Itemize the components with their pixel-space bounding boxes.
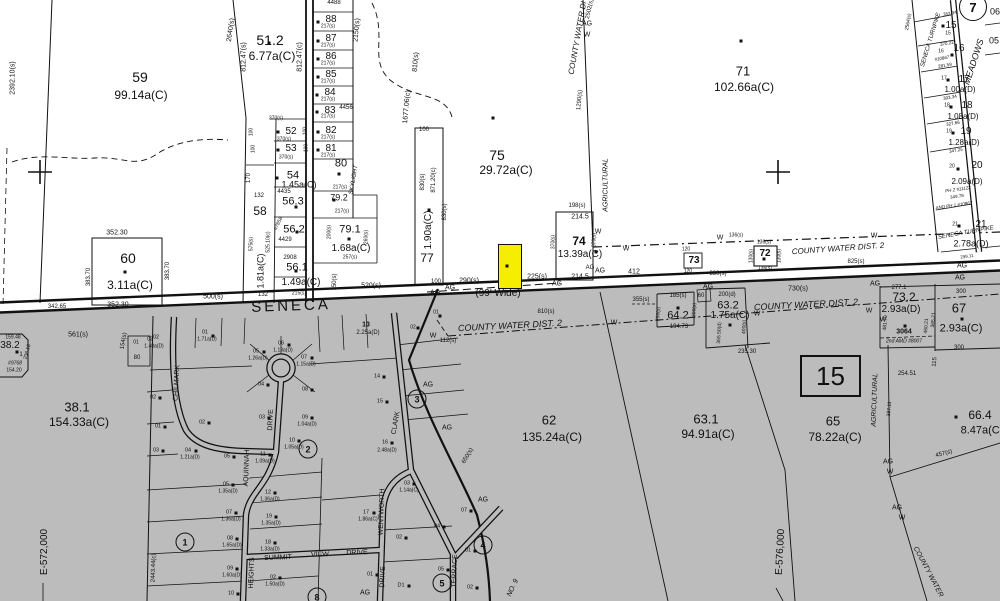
map-label: 1.48a(D) bbox=[144, 345, 163, 350]
map-label: 16 bbox=[938, 50, 944, 55]
map-label: 02 bbox=[153, 335, 159, 341]
map-label: 370(s) bbox=[277, 138, 291, 143]
parcel-dot bbox=[333, 199, 336, 202]
map-label: 18 bbox=[265, 540, 271, 546]
map-label: 235.30 bbox=[738, 349, 756, 355]
map-label: 217(s) bbox=[321, 154, 335, 159]
parcel-dot bbox=[274, 542, 277, 545]
map-label: W bbox=[611, 320, 618, 327]
map-label: 3064 bbox=[896, 329, 912, 336]
map-label: AG bbox=[360, 590, 370, 597]
map-label: 200(s) bbox=[692, 303, 698, 317]
map-label: 100 bbox=[431, 279, 441, 285]
map-label: 2908 bbox=[283, 255, 296, 261]
map-label: 06 bbox=[990, 8, 1000, 17]
map-label: 1.04a(D) bbox=[297, 423, 316, 428]
map-label: 102.66a(C) bbox=[714, 81, 774, 93]
parcel-dot bbox=[443, 526, 446, 529]
parcel-dot bbox=[595, 251, 598, 254]
parcel-map: 15 5999.14a(C)51.26.77a(C)71102.66a(C)75… bbox=[0, 0, 1000, 601]
parcel-dot bbox=[159, 397, 162, 400]
map-label: 14 bbox=[374, 374, 380, 380]
map-labels-layer: 5999.14a(C)51.26.77a(C)71102.66a(C)7529.… bbox=[0, 0, 1000, 601]
map-label: 03 bbox=[404, 481, 410, 487]
map-label: AG bbox=[445, 285, 455, 292]
map-label: 136(s) bbox=[757, 241, 771, 246]
map-label: 53 bbox=[285, 144, 296, 154]
map-label: 77 bbox=[420, 252, 433, 264]
map-label: WENTWORTH bbox=[378, 488, 387, 535]
map-label: 650(s) bbox=[461, 447, 475, 465]
parcel-dot bbox=[276, 177, 279, 180]
map-label: 2443.44(c) bbox=[151, 554, 158, 583]
parcel-dot bbox=[951, 54, 954, 57]
map-label: AG bbox=[430, 290, 440, 297]
map-label: 260(s) bbox=[365, 230, 370, 244]
map-label: W bbox=[887, 469, 894, 476]
map-label: (99' Wide) bbox=[475, 289, 520, 299]
map-label: 20 bbox=[949, 165, 955, 170]
map-label: W bbox=[623, 246, 630, 253]
parcel-dot bbox=[311, 417, 314, 420]
map-label: 73.2 bbox=[892, 291, 915, 303]
map-label: 2nd AMD #8007 bbox=[886, 340, 922, 345]
parcel-dot bbox=[277, 149, 280, 152]
map-label: AGRICULTURAL bbox=[871, 373, 880, 427]
map-label: AG bbox=[892, 505, 902, 512]
map-label: 112(s) bbox=[440, 338, 457, 344]
map-label: 194.73 bbox=[670, 324, 688, 330]
parcel-dot bbox=[233, 456, 236, 459]
map-label: 18 bbox=[961, 101, 972, 111]
map-label: 217(s) bbox=[321, 115, 335, 120]
map-label: 154.20 bbox=[6, 369, 21, 374]
sheet-reference-circle: 1 bbox=[176, 533, 195, 552]
map-label: AGRICULTURAL bbox=[603, 158, 610, 212]
map-label: CHILMARK bbox=[173, 365, 182, 402]
parcel-dot bbox=[277, 131, 280, 134]
map-label: 6.77a(C) bbox=[249, 50, 296, 62]
parcel-dot bbox=[447, 569, 450, 572]
map-label: 330(s) bbox=[709, 271, 726, 277]
map-label: 75 bbox=[489, 148, 505, 162]
parcel-dot bbox=[212, 335, 215, 338]
map-label: COUNTY WATER DIST. 2 bbox=[754, 298, 859, 312]
map-label: 353.34 bbox=[943, 11, 957, 18]
map-label: 10 bbox=[228, 591, 234, 597]
map-label: 16 bbox=[382, 440, 388, 446]
map-label: 352.30 bbox=[107, 302, 128, 309]
parcel-dot bbox=[952, 132, 955, 135]
map-label: AG bbox=[552, 281, 562, 288]
parcel-dot bbox=[236, 568, 239, 571]
map-label: DRIVE bbox=[346, 549, 368, 557]
map-label: 17 bbox=[958, 75, 969, 85]
map-label: 214.5 bbox=[571, 274, 589, 281]
map-label: 2392.10(s) bbox=[10, 61, 17, 94]
map-label: 1.09a(D) bbox=[255, 460, 274, 465]
map-label: 825(s) bbox=[847, 259, 864, 265]
parcel-dot bbox=[268, 417, 271, 420]
map-label: 132 bbox=[254, 193, 264, 199]
map-label: 02 bbox=[199, 420, 205, 426]
map-label: 812.47(s) bbox=[241, 42, 248, 72]
map-label: 04 bbox=[258, 382, 264, 388]
map-label: 13 bbox=[362, 322, 370, 329]
map-label: 130(s) bbox=[750, 249, 755, 263]
map-label: 05 bbox=[224, 454, 230, 460]
parcel-dot bbox=[263, 351, 266, 354]
map-label: HEIGHTS bbox=[248, 557, 256, 588]
map-label: 1.28a(D) bbox=[948, 139, 979, 147]
map-label: 300 bbox=[954, 345, 964, 351]
parcel-dot bbox=[195, 450, 198, 453]
map-label: 810(s) bbox=[537, 309, 554, 315]
parcel-dot bbox=[311, 389, 314, 392]
map-label: 02 bbox=[396, 535, 402, 541]
parcel-dot bbox=[124, 271, 127, 274]
map-label: W bbox=[899, 515, 906, 522]
map-label: 277.1 bbox=[891, 285, 906, 291]
parcel-dot bbox=[386, 401, 389, 404]
parcel-dot bbox=[413, 483, 416, 486]
map-label: 01 bbox=[367, 572, 373, 578]
map-label: W bbox=[430, 333, 437, 340]
parcel-dot bbox=[235, 512, 238, 515]
map-label: SUMMIT bbox=[264, 554, 292, 562]
map-label: 300 bbox=[956, 289, 966, 295]
parcel-dot bbox=[288, 344, 291, 347]
map-label: 60 bbox=[698, 293, 705, 299]
map-label: #9768 bbox=[8, 362, 22, 367]
map-label: 63.1 bbox=[693, 413, 718, 426]
parcel-dot bbox=[408, 585, 411, 588]
map-label: 78.22a(C) bbox=[808, 431, 861, 443]
map-label: 217(s) bbox=[335, 210, 349, 215]
parcel-dot bbox=[295, 270, 298, 273]
map-label: 200(s) bbox=[328, 225, 333, 239]
map-label: 79.1 bbox=[339, 225, 360, 236]
parcel-dot bbox=[237, 593, 240, 596]
map-label: 1290(s) bbox=[576, 90, 584, 111]
map-label: 04 bbox=[434, 524, 440, 530]
map-label: 2.93a(C) bbox=[940, 324, 983, 335]
map-label: 38.1 bbox=[64, 401, 89, 414]
parcel-dot bbox=[957, 168, 960, 171]
map-label: 8.47a(C) bbox=[961, 426, 1000, 437]
parcel-dot bbox=[376, 574, 379, 577]
parcel-dot bbox=[317, 76, 320, 79]
map-label: 1.33a(D) bbox=[260, 548, 279, 553]
map-label: 52 bbox=[285, 127, 296, 137]
map-label: 1.90a(C) bbox=[424, 211, 434, 250]
map-label: 135.24a(C) bbox=[522, 431, 582, 443]
parcel-dot bbox=[373, 512, 376, 515]
map-label: AG bbox=[582, 21, 592, 28]
map-label: 56.3 bbox=[282, 197, 303, 208]
map-label: 74 bbox=[572, 235, 585, 247]
map-label: 159.48 bbox=[5, 336, 20, 341]
parcel-dot bbox=[269, 454, 272, 457]
map-label: 217(s) bbox=[321, 80, 335, 85]
map-label: 58 bbox=[253, 205, 266, 217]
parcel-dot bbox=[506, 265, 509, 268]
parcel-dot bbox=[232, 484, 235, 487]
map-label: 100 bbox=[419, 127, 429, 133]
map-label: COUNTY WATER DIST. 2 bbox=[792, 242, 885, 256]
parcel-dot bbox=[950, 106, 953, 109]
map-label: 3.11a(C) bbox=[107, 279, 153, 291]
map-label: 347.25 bbox=[949, 148, 963, 155]
map-label: 525.10(c) bbox=[267, 231, 272, 252]
map-label: 383.70 bbox=[165, 262, 171, 280]
map-label: 1.81a(C) bbox=[257, 253, 266, 288]
map-label: 09 bbox=[302, 415, 308, 421]
map-label: 59 bbox=[132, 70, 148, 84]
map-label: 67 bbox=[952, 302, 966, 315]
map-label: 10 bbox=[289, 438, 295, 444]
parcel-dot bbox=[476, 587, 479, 590]
parcel-dot bbox=[405, 537, 408, 540]
parcel-dot bbox=[942, 25, 945, 28]
parcel-dot bbox=[740, 40, 743, 43]
map-label: 355(s) bbox=[632, 297, 649, 303]
map-label: AG bbox=[478, 497, 488, 504]
map-label: 1.35a(D) bbox=[218, 490, 237, 495]
map-label: 2150(s) bbox=[352, 18, 361, 42]
map-label: 481.70 bbox=[883, 315, 889, 331]
parcel-dot bbox=[961, 318, 964, 321]
map-label: 830(s) bbox=[442, 203, 448, 220]
map-label: 1.26a(D) bbox=[248, 357, 267, 362]
map-label: 812.47(c) bbox=[297, 42, 304, 72]
map-label: 327.66 bbox=[946, 121, 960, 128]
map-label: 830(s) bbox=[420, 173, 426, 190]
sheet-reference-circle: 2 bbox=[299, 440, 318, 459]
map-label: 217(s) bbox=[321, 98, 335, 103]
map-label: 150(s) bbox=[332, 273, 338, 290]
map-label: 02 bbox=[147, 338, 153, 343]
parcel-dot bbox=[348, 238, 351, 241]
parcel-dot bbox=[904, 325, 907, 328]
map-label: 2.48a(D) bbox=[377, 449, 396, 454]
parcel-dot bbox=[296, 231, 299, 234]
parcel-dot bbox=[275, 516, 278, 519]
map-label: 387.11 bbox=[887, 401, 893, 416]
map-label: AG bbox=[586, 265, 595, 271]
map-label: W bbox=[866, 308, 873, 315]
map-label: E-572,000 bbox=[40, 529, 50, 575]
parcel-dot bbox=[955, 416, 958, 419]
map-label: 365.50(d) bbox=[717, 322, 723, 344]
map-label: SENECA bbox=[251, 297, 331, 315]
map-label: 281.59 bbox=[938, 63, 952, 70]
map-label: 06 bbox=[278, 341, 284, 347]
map-label: 04 bbox=[185, 448, 191, 454]
map-label: TERRACE bbox=[451, 554, 459, 588]
map-label: W bbox=[717, 235, 724, 242]
parcel-dot bbox=[391, 442, 394, 445]
map-label: 1.68a(C) bbox=[332, 244, 371, 254]
map-label: 2564(s) bbox=[905, 13, 913, 31]
map-label: 500(s) bbox=[203, 294, 223, 301]
parcel-dot bbox=[311, 357, 314, 360]
map-label: 02 bbox=[270, 575, 276, 581]
map-label: 2.78a(D) bbox=[953, 240, 988, 249]
map-label: 349.78 bbox=[950, 194, 964, 200]
map-label: VIEW bbox=[311, 551, 329, 559]
map-label: 15 bbox=[945, 21, 956, 31]
parcel-dot bbox=[16, 351, 19, 354]
parcel-dot bbox=[317, 131, 320, 134]
parcel-dot bbox=[383, 376, 386, 379]
map-label: 370(s) bbox=[269, 117, 283, 122]
map-label: 12 bbox=[265, 490, 271, 496]
map-label: 15 bbox=[945, 32, 951, 37]
map-label: 94.91a(C) bbox=[681, 428, 734, 440]
map-label: 383.70 bbox=[86, 268, 92, 286]
map-label: AG bbox=[442, 425, 452, 432]
map-label: 29.72a(C) bbox=[479, 164, 532, 176]
map-label: 19 bbox=[960, 127, 971, 137]
map-label: AG bbox=[423, 382, 433, 389]
map-label: AND PH 1 #10867 bbox=[935, 201, 972, 211]
map-label: AG bbox=[595, 268, 605, 275]
map-label: 115 bbox=[932, 357, 939, 367]
parcel-dot bbox=[316, 94, 319, 97]
map-label: 200(d) bbox=[718, 292, 735, 298]
map-label: 1.36a(D) bbox=[260, 498, 279, 503]
map-label: 370(s) bbox=[279, 156, 293, 161]
map-label: 154(s) bbox=[120, 332, 129, 350]
map-label: 1.13a(D) bbox=[273, 349, 292, 354]
parcel-dot bbox=[317, 58, 320, 61]
map-label: 62 bbox=[542, 414, 556, 427]
map-label: 2640(s) bbox=[226, 18, 236, 42]
map-label: 1.36a(D) bbox=[221, 518, 240, 523]
map-label: 1.35a(D) bbox=[261, 522, 280, 527]
map-label: 51.2 bbox=[256, 33, 283, 47]
map-label: 215(s) bbox=[292, 292, 306, 297]
map-label: 136(s) bbox=[758, 267, 772, 272]
map-label: 80 bbox=[335, 159, 347, 170]
map-label: AG bbox=[957, 263, 967, 270]
map-label: 05 bbox=[438, 567, 444, 573]
map-label: 08 bbox=[302, 387, 308, 393]
map-label: AG bbox=[955, 275, 965, 282]
sheet-reference-circle: 5 bbox=[433, 574, 452, 593]
map-label: W bbox=[871, 233, 878, 240]
map-label: 1.14a(C) bbox=[399, 489, 418, 494]
map-label: 02 bbox=[410, 326, 416, 331]
map-label: 520(s) bbox=[361, 283, 381, 290]
map-label: D1 bbox=[397, 583, 404, 589]
map-label: W bbox=[595, 229, 602, 236]
map-label: 17 bbox=[363, 510, 369, 516]
map-label: 1.65a(D) bbox=[222, 544, 241, 549]
map-label: NO. 9 bbox=[506, 578, 520, 598]
parcel-dot bbox=[439, 315, 442, 318]
map-label: 16 bbox=[953, 44, 964, 54]
parcel-dot bbox=[295, 206, 298, 209]
map-label: 05 bbox=[253, 349, 259, 355]
map-label: 730(s) bbox=[788, 286, 808, 293]
map-label: 64.2 bbox=[667, 311, 688, 322]
map-label: 05 bbox=[223, 482, 229, 488]
map-label: 254.51 bbox=[898, 371, 916, 377]
map-label: 185(s) bbox=[669, 293, 686, 299]
map-label: COUNTY WATER bbox=[912, 546, 944, 599]
parcel-dot bbox=[317, 21, 320, 24]
parcel-dot bbox=[279, 577, 282, 580]
map-label: 400(s) bbox=[742, 320, 748, 334]
parcel-dot bbox=[236, 538, 239, 541]
map-label: 03 bbox=[153, 448, 159, 454]
map-label: AG bbox=[703, 284, 713, 291]
parcel-dot bbox=[947, 79, 950, 82]
map-label: 457(s) bbox=[935, 449, 953, 459]
map-label: 1.86a(C) bbox=[358, 518, 377, 523]
map-label: 170 bbox=[246, 173, 252, 183]
map-label: DRIVE bbox=[267, 409, 275, 431]
parcel-dot bbox=[164, 426, 167, 429]
map-label: 65 bbox=[826, 415, 840, 428]
sheet-reference-circle: 3 bbox=[408, 390, 427, 409]
map-label: 154.33a(C) bbox=[49, 416, 109, 428]
map-label: CLARK bbox=[391, 411, 402, 435]
map-label: 225(s) bbox=[527, 274, 547, 281]
map-label: 99.14a(C) bbox=[114, 89, 167, 101]
map-label: 09 bbox=[227, 566, 233, 572]
parcel-dot bbox=[274, 492, 277, 495]
map-label: 60 bbox=[120, 251, 136, 265]
parcel-dot bbox=[317, 40, 320, 43]
map-label: 1.49a(C) bbox=[282, 278, 321, 288]
parcel-dot bbox=[316, 111, 319, 114]
map-label: 1.00a(D) bbox=[944, 86, 975, 94]
map-label: 01 bbox=[202, 330, 208, 336]
map-label: 07 bbox=[226, 510, 232, 516]
sheet-reference-circle: 7 bbox=[959, 0, 987, 21]
map-label: 352.30 bbox=[106, 230, 127, 237]
map-label: 132 bbox=[258, 292, 268, 298]
map-label: DRIVE bbox=[379, 566, 387, 588]
map-label: 1677.06(c) bbox=[402, 90, 412, 124]
map-label: 20 bbox=[971, 161, 982, 171]
map-label: 1.60a(D) bbox=[222, 574, 241, 579]
map-label: 4429 bbox=[278, 237, 291, 243]
map-label: 01 bbox=[133, 341, 139, 346]
map-label: W bbox=[754, 311, 761, 318]
map-label: 71 bbox=[736, 65, 750, 78]
map-label: 120 bbox=[684, 270, 692, 275]
map-label: 217(s) bbox=[321, 44, 335, 49]
map-label: 02 bbox=[150, 395, 156, 401]
map-label: 120 bbox=[682, 248, 690, 253]
parcel-dot bbox=[729, 324, 732, 327]
map-label: 03 bbox=[259, 415, 265, 421]
map-label: 1.50a(D) bbox=[265, 583, 284, 588]
map-label: 100 bbox=[250, 128, 255, 136]
map-label: 236.18 bbox=[24, 344, 33, 360]
parcel-dot bbox=[492, 117, 495, 120]
map-label: 217(s) bbox=[321, 136, 335, 141]
map-label: 08 bbox=[227, 536, 233, 542]
map-label: 1.71a(D) bbox=[197, 338, 216, 343]
map-label: 257(s) bbox=[343, 256, 357, 261]
parcel-dot bbox=[958, 225, 961, 228]
map-label: 2.25a(D) bbox=[356, 330, 379, 336]
